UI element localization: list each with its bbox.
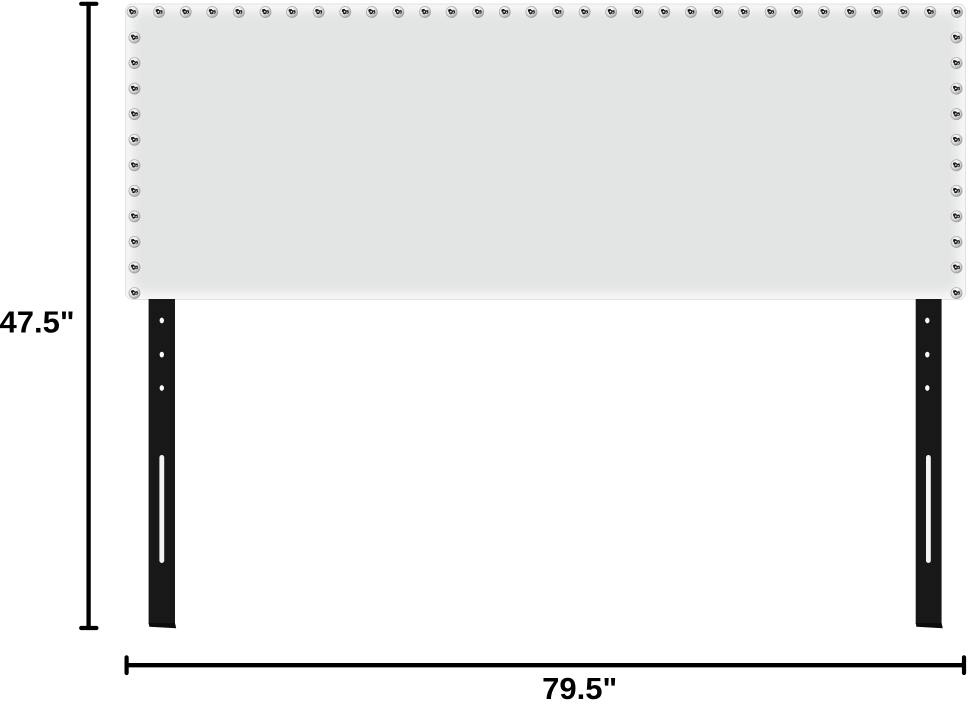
svg-text:47.5": 47.5": [0, 305, 75, 340]
svg-text:79.5": 79.5": [542, 671, 617, 700]
